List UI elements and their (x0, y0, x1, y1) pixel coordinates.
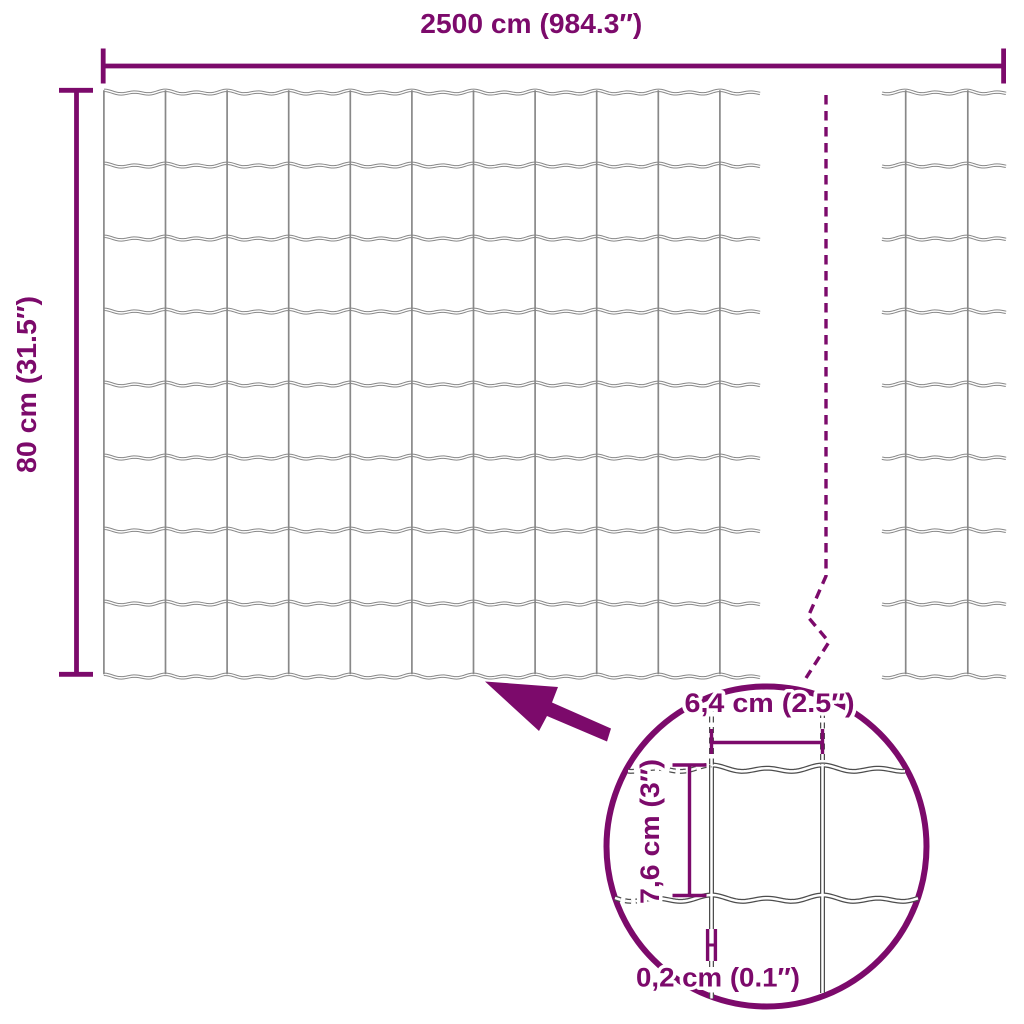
svg-text:6,4 cm (2.5″): 6,4 cm (2.5″) (685, 688, 855, 718)
svg-text:7,6 cm (3″): 7,6 cm (3″) (635, 759, 665, 904)
svg-text:80 cm (31.5″): 80 cm (31.5″) (11, 296, 42, 473)
svg-text:2500 cm (984.3″): 2500 cm (984.3″) (420, 8, 642, 39)
svg-text:0,2 cm (0.1″): 0,2 cm (0.1″) (636, 963, 800, 993)
